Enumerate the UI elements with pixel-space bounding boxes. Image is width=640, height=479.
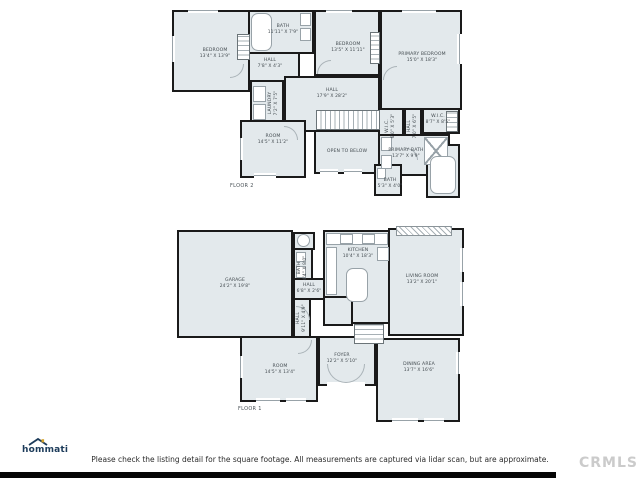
refrigerator	[377, 247, 389, 261]
room-dims: 14'5" X 13'4"	[265, 370, 296, 376]
room-label-bath: BATH 11'11" X 7'9"	[268, 24, 299, 36]
room-label-room2: ROOM 14'5" X 11'2"	[258, 134, 289, 146]
hommati-logo: hommati	[22, 437, 74, 457]
window	[456, 352, 461, 374]
room-label-open-to-below: OPEN TO BELOW	[327, 149, 367, 155]
window	[457, 34, 462, 64]
dryer	[253, 104, 266, 120]
window	[238, 138, 243, 160]
closet-shelves	[237, 34, 250, 60]
room-dims: 13'4" X 13'9"	[200, 54, 231, 60]
room-dims: 13'2" X 20'1"	[406, 280, 439, 286]
crmls-watermark: CRMLS	[579, 455, 638, 471]
room-label-wic2: W.I.C. 8'7" X 8'5"	[426, 114, 451, 126]
room-label-hall-center: HALL 17'9" X 28'2"	[317, 88, 348, 100]
window	[320, 169, 338, 174]
sink	[300, 13, 311, 26]
floor1-dining-outline	[376, 338, 460, 422]
stove	[340, 234, 353, 244]
room-dims: 7'0" X 6'5"	[413, 114, 419, 139]
room-label-garage: GARAGE 24'2" X 19'8"	[220, 278, 251, 290]
room-label-room-f1: ROOM 14'5" X 13'4"	[265, 364, 296, 376]
room-label-laundry: LAUNDRY 7'2" X 7'5"	[268, 91, 280, 116]
room-label-living-room: LIVING ROOM 13'2" X 20'1"	[406, 274, 439, 286]
room-dims: 6'0" X 5'3"	[391, 114, 397, 139]
room-label-primary-bedroom: PRIMARY BEDROOM 15'0" X 18'3"	[398, 52, 445, 64]
bathtub	[430, 156, 456, 194]
room-dims: 10'4" X 18'3"	[343, 254, 374, 260]
room-label-hall-top: HALL 7'8" X 4'3"	[258, 58, 283, 70]
window	[392, 418, 418, 423]
room-label-wic1: W.I.C. 6'0" X 5'3"	[385, 114, 397, 139]
window	[460, 248, 465, 272]
room-label-primary-bath: PRIMARY BATH 13'7" X 9'9"	[388, 148, 423, 160]
room-dims: 14'5" X 11'2"	[258, 140, 289, 146]
window	[254, 173, 276, 178]
room-dims: 5'3" X 4'0"	[378, 184, 403, 190]
room-dims: 4'4" X 8'0"	[303, 256, 309, 281]
floorplan-image: BEDROOM 13'4" X 13'9" BATH 11'11" X 7'9"…	[0, 0, 640, 479]
room-label-kitchen: KITCHEN 10'4" X 18'3"	[343, 248, 374, 260]
room-dims: 6'8" X 2'6"	[297, 289, 322, 295]
floor-2-caption: FLOOR 2	[230, 183, 254, 189]
floor1-stairs	[354, 324, 384, 344]
window	[402, 8, 436, 13]
kitchen-sink	[362, 234, 375, 244]
window	[326, 8, 352, 13]
room-dims: 8'7" X 8'5"	[426, 120, 451, 126]
floor-2-plan: BEDROOM 13'4" X 13'9" BATH 11'11" X 7'9"…	[170, 8, 470, 204]
room-label-bedroom2: BEDROOM 13'5" X 11'11"	[331, 42, 365, 54]
room-label-bedroom1: BEDROOM 13'4" X 13'9"	[200, 48, 231, 60]
room-name: OPEN TO BELOW	[327, 149, 367, 155]
room-dims: 24'2" X 19'8"	[220, 284, 251, 290]
room-dims: 7'8" X 4'3"	[258, 64, 283, 70]
room-dims: 13'7" X 9'9"	[388, 154, 423, 160]
bottom-bar	[0, 472, 556, 478]
window	[188, 8, 218, 13]
kitchen-counter	[326, 247, 337, 295]
floor2-room-outline	[240, 120, 306, 178]
hearth-tile	[396, 226, 452, 236]
room-dims: 7'2" X 7'5"	[274, 91, 280, 116]
room-dims: 9'11" X 4'9"	[302, 304, 308, 332]
room-label-dining-area: DINING AREA 13'7" X 16'6"	[403, 362, 435, 374]
washer	[253, 86, 266, 102]
room-label-hall-vert-f1: HALL 9'11" X 4'9"	[296, 304, 308, 332]
window	[170, 36, 175, 62]
room-dims: 12'2" X 5'10"	[327, 359, 358, 365]
room-label-bath2: BATH 5'3" X 4'0"	[378, 178, 403, 190]
room-dims: 13'5" X 11'11"	[331, 48, 365, 54]
floor-1-plan: GARAGE 24'2" X 19'8" BATH 4'4" X 8'0" HA…	[170, 220, 470, 424]
floor2-stairs	[316, 110, 380, 130]
logo-text: hommati	[22, 445, 68, 455]
sink	[300, 28, 311, 41]
room-dims: 13'7" X 16'6"	[403, 368, 435, 374]
room-dims: 15'0" X 18'3"	[398, 58, 445, 64]
room-label-foyer: FOYER 12'2" X 5'10"	[327, 353, 358, 365]
kitchen-island	[346, 268, 368, 302]
disclaimer-text: Please check the listing detail for the …	[0, 455, 640, 464]
room-label-bath-f1: BATH 4'4" X 8'0"	[297, 256, 309, 281]
room-label-hall-f1: HALL 6'8" X 2'6"	[297, 283, 322, 295]
window	[424, 418, 444, 423]
closet-shelves	[370, 32, 380, 64]
room-label-hall-vert: HALL 7'0" X 6'5"	[407, 114, 419, 139]
room-dims: 17'9" X 28'2"	[317, 94, 348, 100]
window	[460, 282, 465, 306]
water-heater	[297, 234, 310, 247]
room-dims: 11'11" X 7'9"	[268, 30, 299, 36]
window	[344, 169, 362, 174]
floor-1-caption: FLOOR 1	[238, 406, 262, 412]
window	[238, 356, 243, 378]
window	[256, 398, 280, 403]
kitchen-counter	[326, 233, 388, 245]
window	[286, 398, 306, 403]
